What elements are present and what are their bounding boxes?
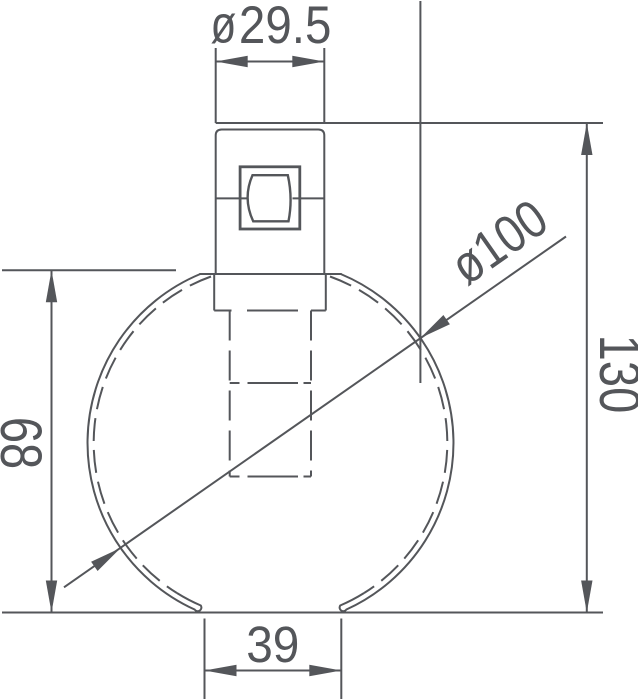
- svg-text:ø: ø: [211, 0, 237, 54]
- svg-text:130: 130: [587, 335, 638, 414]
- svg-text:ø100: ø100: [440, 188, 559, 296]
- svg-text:39: 39: [246, 617, 299, 674]
- svg-text:29.5: 29.5: [239, 0, 331, 55]
- svg-text:68: 68: [0, 417, 52, 469]
